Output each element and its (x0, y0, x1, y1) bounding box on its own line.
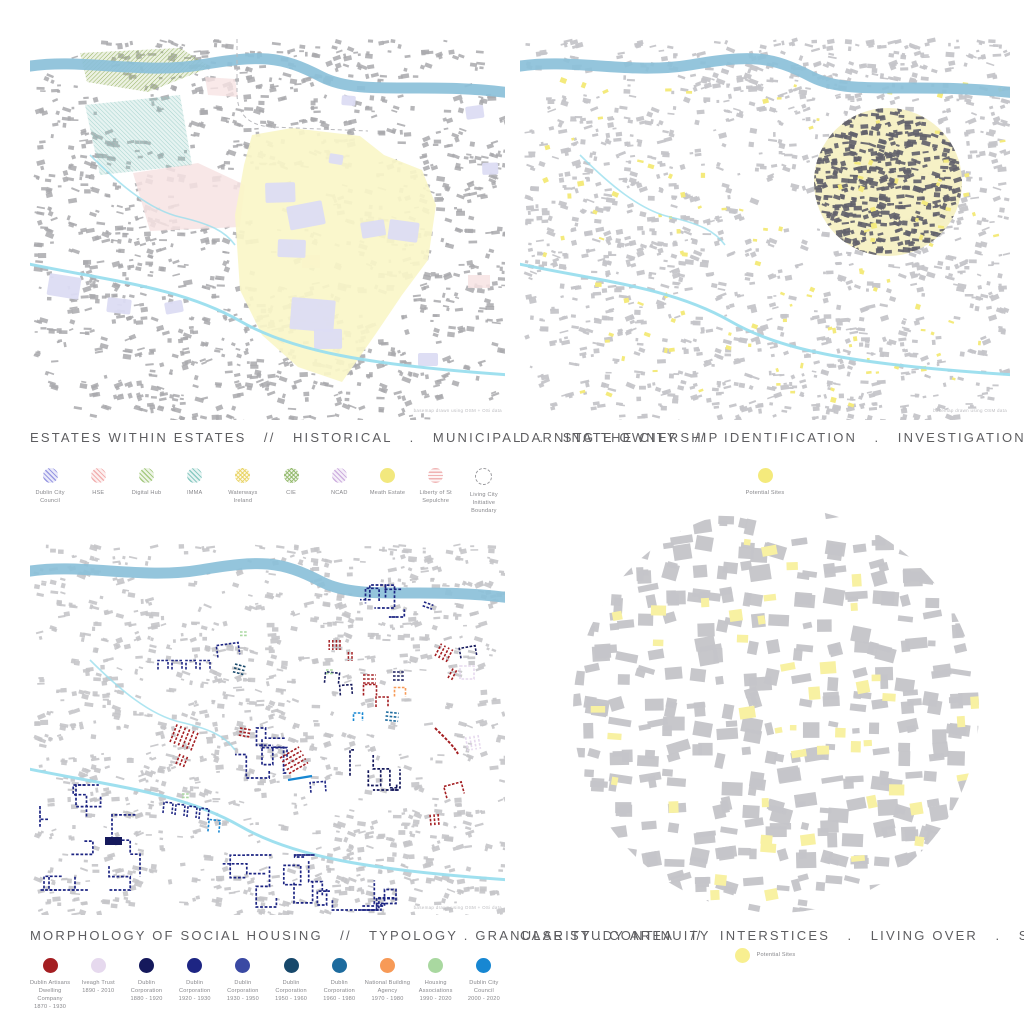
legend-dates: 2000 - 2020 (468, 995, 500, 1003)
legend-item: Dublin Corporation1930 - 1950 (219, 958, 267, 1011)
potential-sites-label: Potential Sites (757, 951, 796, 959)
legend-dates: 1880 - 1920 (130, 995, 162, 1003)
legend-dates: 1930 - 1950 (227, 995, 259, 1003)
legend-casestudy: Potential Sites (520, 948, 1010, 963)
legend-item: Dublin City Council (26, 468, 74, 515)
legend-morphology: Dublin Artisans Dwelling Company1870 - 1… (26, 958, 508, 1011)
legend-item: IMMA (171, 468, 219, 515)
panel-title-estates: ESTATES WITHIN ESTATES // HISTORICAL . M… (30, 430, 505, 445)
legend-swatch (284, 468, 299, 483)
legend-swatch (332, 958, 347, 973)
legend-swatch (91, 468, 106, 483)
legend-label: Dublin City Council (26, 489, 74, 505)
legend-label: Living City Initiative Boundary (460, 491, 508, 515)
legend-item: NCAD (315, 468, 363, 515)
legend-item: CIE (267, 468, 315, 515)
map-caption: basemap drawn using OSM data (520, 408, 1007, 413)
legend-item: Meath Estate (363, 468, 411, 515)
legend-swatch (139, 468, 154, 483)
legend-item: Dublin Corporation1880 - 1920 (122, 958, 170, 1011)
legend-dates: 1870 - 1930 (34, 1003, 66, 1011)
legend-swatch (43, 468, 58, 483)
legend-item: Living City Initiative Boundary (460, 468, 508, 515)
legend-swatch (476, 958, 491, 973)
legend-label: Dublin Corporation (315, 979, 363, 995)
legend-label: National Building Agency (363, 979, 411, 995)
legend-swatch (428, 958, 443, 973)
legend-label: Dublin Corporation (267, 979, 315, 995)
legend-dates: 1950 - 1960 (275, 995, 307, 1003)
legend-item: National Building Agency1970 - 1980 (363, 958, 411, 1011)
legend-item: Waterways Ireland (219, 468, 267, 515)
legend-swatch (284, 958, 299, 973)
legend-item: Dublin Corporation1920 - 1930 (171, 958, 219, 1011)
legend-label: CIE (286, 489, 296, 497)
map-case-study-area (548, 500, 1003, 925)
legend-item: Iveagh Trust1890 - 2010 (74, 958, 122, 1011)
panel-title-casestudy: CASE STUDY AREA // INTERSTICES . LIVING … (520, 928, 1010, 943)
legend-swatch (235, 958, 250, 973)
panel-title-morphology: MORPHOLOGY OF SOCIAL HOUSING // TYPOLOGY… (30, 928, 505, 943)
potential-sites-swatch (758, 468, 773, 483)
legend-swatch (380, 958, 395, 973)
legend-swatch (139, 958, 154, 973)
legend-label: NCAD (331, 489, 348, 497)
legend-item: Dublin Artisans Dwelling Company1870 - 1… (26, 958, 74, 1011)
legend-swatch (187, 958, 202, 973)
legend-swatch (43, 958, 58, 973)
legend-darning: Potential Sites (520, 468, 1010, 497)
legend-item: Digital Hub (122, 468, 170, 515)
legend-label: Dublin City Council (460, 979, 508, 995)
map-morphology-social-housing (30, 540, 505, 915)
legend-dates: 1970 - 1980 (371, 995, 403, 1003)
legend-swatch (235, 468, 250, 483)
legend-swatch (380, 468, 395, 483)
map-caption: basemap drawn using OSM + OSi data (30, 905, 502, 910)
legend-swatch (475, 468, 492, 485)
legend-dates: 1990 - 2020 (420, 995, 452, 1003)
legend-swatch (187, 468, 202, 483)
map-estates-within-estates (30, 35, 505, 420)
legend-item: Dublin Corporation1960 - 1980 (315, 958, 363, 1011)
legend-item: Housing Associations1990 - 2020 (412, 958, 460, 1011)
legend-label: Iveagh Trust (82, 979, 115, 987)
legend-item: HSE (74, 468, 122, 515)
potential-sites-swatch (735, 948, 750, 963)
legend-label: IMMA (187, 489, 202, 497)
legend-dates: 1920 - 1930 (179, 995, 211, 1003)
legend-label: Dublin Corporation (219, 979, 267, 995)
legend-label: Housing Associations (412, 979, 460, 995)
legend-swatch (91, 958, 106, 973)
map-caption: basemap drawn using OSM + OSi data (30, 408, 502, 413)
legend-label: Dublin Artisans Dwelling Company (26, 979, 74, 1003)
legend-label: Waterways Ireland (219, 489, 267, 505)
legend-label: Dublin Corporation (171, 979, 219, 995)
legend-dates: 1960 - 1980 (323, 995, 355, 1003)
legend-item: Dublin Corporation1950 - 1960 (267, 958, 315, 1011)
legend-item: Dublin City Council2000 - 2020 (460, 958, 508, 1011)
legend-label: Liberty of St Sepulchre (412, 489, 460, 505)
legend-swatch (332, 468, 347, 483)
panel-title-darning: DARNING THE CITY // IDENTIFICATION . INV… (520, 430, 1010, 445)
legend-label: Meath Estate (370, 489, 405, 497)
potential-sites-label: Potential Sites (746, 489, 785, 497)
legend-estates: Dublin City CouncilHSEDigital HubIMMAWat… (26, 468, 508, 515)
legend-dates: 1890 - 2010 (82, 987, 114, 995)
poster-canvas: basemap drawn using OSM + OSi data ESTAT… (0, 0, 1024, 1024)
map-darning-the-city (520, 35, 1010, 420)
legend-label: HSE (92, 489, 104, 497)
legend-item: Liberty of St Sepulchre (412, 468, 460, 515)
legend-label: Digital Hub (132, 489, 162, 497)
legend-label: Dublin Corporation (122, 979, 170, 995)
legend-swatch (428, 468, 443, 483)
